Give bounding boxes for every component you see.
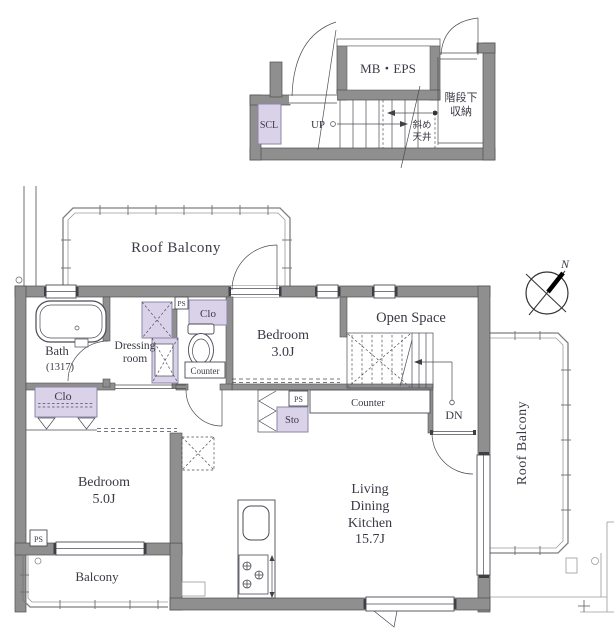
bedroom5-window	[54, 542, 147, 555]
mb-eps-room: MB・EPS	[337, 39, 440, 100]
kitchen-stove	[239, 555, 268, 594]
ldk-bottom-window	[364, 597, 457, 627]
compass: N	[526, 257, 570, 315]
hall-closet: Clo	[35, 387, 97, 429]
balcony-door-arc	[232, 245, 277, 290]
counter-mid-label: Counter	[351, 398, 385, 409]
landing-door	[430, 430, 476, 474]
scl-label: SCL	[260, 120, 278, 131]
upper-wall-pillar	[270, 62, 282, 97]
up-label: UP	[311, 119, 325, 131]
ldk-right-window	[477, 452, 490, 578]
ldk: Living Dining Kitchen 15.7J	[182, 437, 392, 598]
bath-window	[44, 285, 79, 298]
clo-top-label: Clo	[200, 308, 216, 320]
toilet-counter-label: Counter	[191, 366, 220, 376]
openspace-window-2	[372, 285, 398, 298]
entrance-door-arc	[292, 22, 336, 96]
ldk-label-4: 15.7J	[355, 532, 386, 547]
floor-plan-page: MB・EPS 階段下 収納	[0, 0, 614, 640]
landing-door-arc	[432, 433, 473, 474]
bath-label: Bath	[45, 344, 69, 358]
ps-top-label: PS	[177, 299, 185, 308]
kitchen-sink	[243, 506, 269, 540]
hanger-symbol-2	[78, 418, 95, 429]
upper-wall-bottom	[250, 148, 495, 160]
main-wall-bottom-right	[452, 598, 490, 610]
roof-balcony-right: Roof Balcony	[490, 331, 571, 555]
clo-hall-label: Clo	[54, 389, 71, 403]
mb-eps-label: MB・EPS	[360, 61, 416, 76]
bedroom3-label-2: 3.0J	[272, 345, 296, 360]
upper-wall-rightcap	[477, 43, 495, 53]
compass-needle	[548, 273, 563, 292]
stair-cut-line	[318, 30, 336, 150]
understair-label-1: 階段下	[445, 90, 478, 104]
scl-closet: SCL	[258, 104, 281, 144]
site-boundary-lines	[16, 186, 36, 286]
folding-door	[259, 391, 276, 431]
window-flap	[374, 611, 397, 627]
hanger-symbol-1	[38, 418, 55, 429]
bath-room: Bath (1317)	[36, 301, 108, 381]
arrow-right	[400, 121, 408, 127]
ldk-label-2: Dining	[351, 499, 390, 514]
floor-plan-drawing: MB・EPS 階段下 収納	[0, 0, 614, 640]
ldk-label-1: Living	[351, 482, 388, 497]
toilet-door-arc	[186, 390, 222, 426]
bedroom5-label-2: 5.0J	[93, 492, 117, 507]
upper-floor: MB・EPS 階段下 収納	[250, 18, 495, 168]
bedroom3-label-1: Bedroom	[257, 328, 309, 343]
ldk-label-3: Kitchen	[348, 516, 392, 531]
balcony-door-top	[229, 245, 282, 297]
ps-mid-label: PS	[294, 395, 303, 404]
slant-ceiling-dot	[433, 111, 438, 116]
bathtub	[36, 301, 106, 347]
storage-door-arc	[441, 18, 478, 55]
dressing-room: Dressing room	[115, 302, 178, 383]
upper-wall-right	[483, 43, 495, 160]
main-wall-bottom-left	[170, 598, 368, 610]
balcony: Balcony	[20, 555, 168, 609]
roof-balcony-top-label: Roof Balcony	[131, 240, 221, 256]
bedroom-5: Bedroom 5.0J PS	[30, 475, 130, 546]
sto-label: Sto	[285, 415, 299, 426]
compass-north-label: N	[560, 257, 570, 271]
understair-label-2: 収納	[450, 105, 472, 118]
toilet	[188, 324, 214, 367]
slant-label-2: 天井	[412, 131, 431, 143]
roof-balcony-top: Roof Balcony	[61, 205, 292, 290]
roof-balcony-right-label: Roof Balcony	[515, 401, 530, 485]
fridge-space	[182, 437, 214, 470]
ps-bottom-label: PS	[34, 535, 43, 544]
bath-size-label: (1317)	[46, 362, 74, 373]
main-wall-right-upper	[478, 286, 490, 455]
slant-label-1: 斜め	[412, 119, 431, 131]
understair-storage-door	[440, 18, 478, 59]
bedroom5-label-1: Bedroom	[78, 475, 130, 490]
hall-fixtures: Counter PS Sto	[258, 390, 430, 432]
floor-step	[182, 582, 205, 596]
dn-label: DN	[445, 408, 463, 422]
dressing-label-2: room	[123, 353, 147, 365]
balcony-label: Balcony	[75, 569, 119, 584]
bedroom-3: Bedroom 3.0J	[257, 328, 309, 360]
open-space-label: Open Space	[376, 310, 446, 326]
main-wall-left	[15, 286, 26, 612]
arrow-left	[387, 110, 395, 116]
up-start-circle	[331, 122, 336, 127]
kitchen-unit	[238, 500, 275, 598]
dressing-label-1: Dressing	[115, 340, 156, 352]
toilet-room: PS Clo Counter	[175, 297, 227, 426]
openspace-window-1	[315, 285, 341, 298]
exterior-walkway	[490, 522, 614, 612]
